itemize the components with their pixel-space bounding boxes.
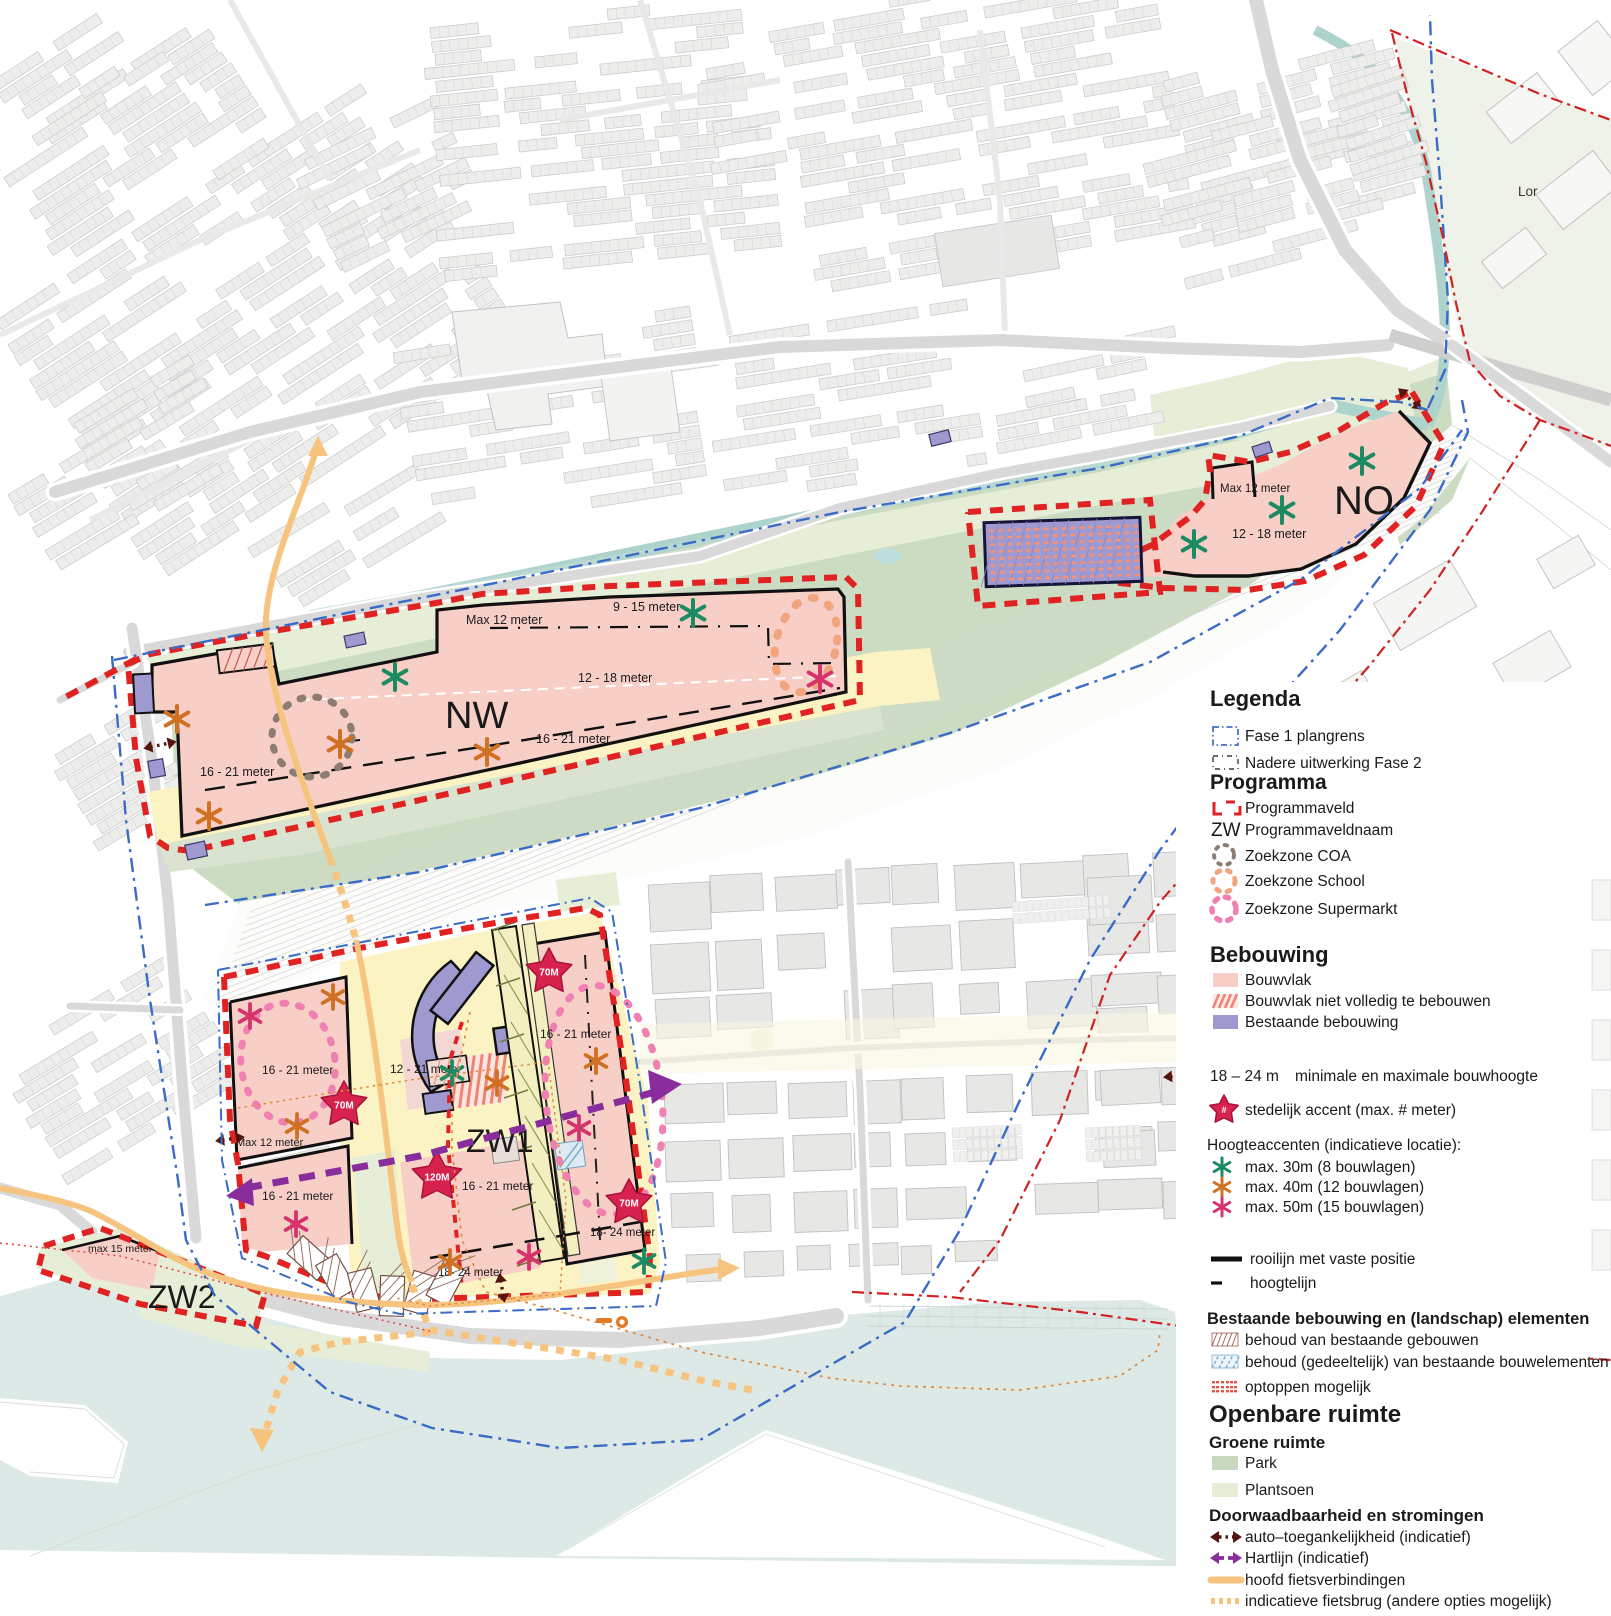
svg-text:indicatieve fietsbrug (andere: indicatieve fietsbrug (andere opties mog…: [1245, 1593, 1552, 1610]
svg-text:ZW: ZW: [1211, 820, 1241, 841]
svg-text:Fase 1 plangrens: Fase 1 plangrens: [1245, 728, 1365, 745]
svg-text:Park: Park: [1245, 1455, 1277, 1472]
svg-text:NW: NW: [445, 695, 508, 737]
svg-text:12 - 18 meter: 12 - 18 meter: [1232, 527, 1306, 541]
svg-text:optoppen mogelijk: optoppen mogelijk: [1245, 1379, 1371, 1396]
svg-text:Bestaande bebouwing en (landsc: Bestaande bebouwing en (landschap) eleme…: [1207, 1310, 1589, 1328]
svg-text:Lor: Lor: [1518, 184, 1538, 199]
svg-text:120M: 120M: [424, 1173, 449, 1184]
svg-text:Hartlijn (indicatief): Hartlijn (indicatief): [1245, 1550, 1369, 1567]
svg-text:70M: 70M: [619, 1199, 638, 1210]
svg-text:Programma: Programma: [1210, 771, 1327, 794]
svg-text:70M: 70M: [539, 968, 558, 979]
svg-text:9 - 15 meter: 9 - 15 meter: [613, 600, 680, 614]
svg-text:Zoekzone COA: Zoekzone COA: [1245, 848, 1352, 865]
svg-text:Max 12 meter: Max 12 meter: [466, 613, 542, 627]
svg-text:behoud van bestaande gebouwen: behoud van bestaande gebouwen: [1245, 1332, 1479, 1349]
svg-text:auto–toegankelijkheid (indicat: auto–toegankelijkheid (indicatief): [1245, 1529, 1471, 1546]
svg-text:Bebouwing: Bebouwing: [1210, 942, 1329, 967]
svg-text:16 - 21 meter: 16 - 21 meter: [462, 1179, 533, 1193]
svg-text:16 - 21 meter: 16 - 21 meter: [200, 765, 274, 779]
svg-text:16 - 21 meter: 16 - 21 meter: [262, 1063, 333, 1077]
svg-text:max. 40m (12 bouwlagen): max. 40m (12 bouwlagen): [1245, 1179, 1424, 1196]
svg-text:max 15 meter: max 15 meter: [88, 1243, 153, 1255]
svg-text:minimale en maximale bouwhoogt: minimale en maximale bouwhoogte: [1295, 1068, 1538, 1085]
svg-text:Max 12 meter: Max 12 meter: [1220, 483, 1290, 495]
svg-text:16 - 21 meter: 16 - 21 meter: [262, 1189, 333, 1203]
svg-text:ZW2: ZW2: [148, 1279, 216, 1315]
svg-text:Programmaveld: Programmaveld: [1245, 800, 1354, 817]
svg-text:Groene ruimte: Groene ruimte: [1209, 1433, 1325, 1452]
svg-text:Bouwvlak niet volledig te bebo: Bouwvlak niet volledig te bebouwen: [1245, 993, 1491, 1010]
svg-text:16 - 21 meter: 16 - 21 meter: [536, 732, 610, 746]
svg-text:Bestaande bebouwing: Bestaande bebouwing: [1245, 1014, 1398, 1031]
svg-text:18 – 24 m: 18 – 24 m: [1210, 1068, 1279, 1085]
svg-text:16 - 21 meter: 16 - 21 meter: [540, 1027, 611, 1041]
svg-text:Zoekzone Supermarkt: Zoekzone Supermarkt: [1245, 901, 1398, 918]
svg-text:max. 30m (8 bouwlagen): max. 30m (8 bouwlagen): [1245, 1159, 1416, 1176]
svg-text:#: #: [1221, 1105, 1226, 1115]
svg-text:Openbare ruimte: Openbare ruimte: [1209, 1401, 1401, 1428]
svg-text:18- 24 meter: 18- 24 meter: [438, 1267, 503, 1279]
svg-text:Doorwaadbaarheid en stromingen: Doorwaadbaarheid en stromingen: [1209, 1506, 1484, 1525]
svg-text:hoogtelijn: hoogtelijn: [1250, 1275, 1316, 1292]
svg-text:70M: 70M: [334, 1101, 353, 1112]
svg-text:Zoekzone School: Zoekzone School: [1245, 873, 1365, 890]
svg-text:12 - 18 meter: 12 - 18 meter: [578, 671, 652, 685]
svg-text:rooilijn met vaste positie: rooilijn met vaste positie: [1250, 1251, 1415, 1268]
svg-text:Max 12 meter: Max 12 meter: [236, 1137, 304, 1149]
svg-text:Bouwvlak: Bouwvlak: [1245, 972, 1312, 989]
svg-text:NO: NO: [1334, 479, 1394, 523]
svg-text:Legenda: Legenda: [1210, 686, 1301, 711]
svg-text:Programmaveldnaam: Programmaveldnaam: [1245, 822, 1393, 839]
svg-text:stedelijk accent (max. # meter: stedelijk accent (max. # meter): [1245, 1102, 1456, 1119]
svg-text:Plantsoen: Plantsoen: [1245, 1482, 1314, 1499]
svg-text:hoofd fietsverbindingen: hoofd fietsverbindingen: [1245, 1572, 1405, 1589]
svg-text:behoud (gedeeltelijk) van best: behoud (gedeeltelijk) van bestaande bouw…: [1245, 1354, 1609, 1371]
svg-text:18- 24 meter: 18- 24 meter: [590, 1227, 655, 1239]
svg-text:Nadere uitwerking Fase 2: Nadere uitwerking Fase 2: [1245, 755, 1422, 772]
svg-text:Hoogteaccenten (indicatieve lo: Hoogteaccenten (indicatieve locatie):: [1207, 1137, 1461, 1154]
svg-text:max. 50m (15 bouwlagen): max. 50m (15 bouwlagen): [1245, 1199, 1424, 1216]
